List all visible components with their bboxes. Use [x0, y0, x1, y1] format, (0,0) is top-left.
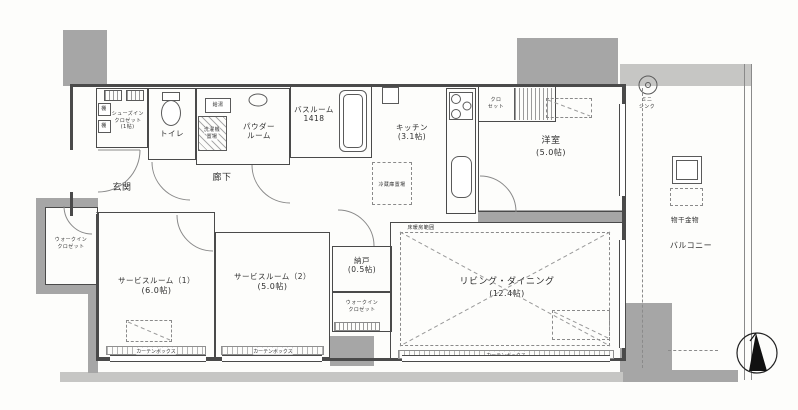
window-living-balcony: [619, 240, 626, 348]
window-service1: [110, 355, 206, 362]
storage-label: 納戸 (0.5帖): [334, 252, 390, 278]
bathtub-inner: [343, 94, 363, 148]
wall-wic-left-top: [36, 198, 98, 207]
wall-bottom-right-horz: [620, 370, 738, 382]
floor-heating-label: 床暖房範囲: [398, 224, 444, 233]
wic-left-label: ウォークイン クロゼット: [44, 232, 98, 256]
balcony-label: バルコニー: [664, 240, 718, 252]
service2-label: サービスルーム（2） (5.0帖): [219, 266, 326, 298]
window-service2: [222, 355, 322, 362]
living-label: リビング・ダイニング (12.4帖): [428, 272, 586, 304]
wic-center-shelf: [334, 322, 380, 331]
wic-center-label: ウォークイン クロゼット: [334, 296, 390, 318]
curtain-box-service1: カーテンボックス: [106, 346, 206, 355]
shoes-closet-label: シューズイン クロゼット (1帖): [106, 104, 150, 138]
laundry-pole-label: 物干金物: [662, 215, 708, 226]
wall-top-center-block: [517, 38, 618, 85]
compass: [737, 333, 777, 373]
bedroom-closet-label: クロ セット: [480, 88, 512, 120]
floor-plan: 棚 棚 シューズイン クロゼット (1帖) トイレ 給湯 洗濯機 置場 パウダー…: [0, 0, 798, 410]
kitchen-label: キッチン (3.1帖): [378, 118, 446, 146]
toilet-label: トイレ: [152, 128, 192, 140]
balcony-rail-outer: [751, 64, 752, 380]
fridge-label: 冷蔵庫置場: [372, 180, 412, 190]
kitchen-sink: [451, 156, 472, 198]
door-swing-storage: [338, 210, 374, 246]
compass-circle: [737, 333, 777, 373]
shoes-shelf-top-1: [104, 90, 122, 101]
wall-top-right-band: [620, 64, 752, 86]
door-swing-powder: [252, 165, 290, 203]
sill-bottom-left: [60, 372, 393, 382]
balcony-rail-inner: [744, 64, 745, 380]
wall-center-bottom-block: [330, 336, 374, 366]
toilet-bowl: [161, 100, 181, 126]
balcony-divider-dashed: [668, 350, 718, 351]
service1-label: サービスルーム（1） (6.0帖): [102, 270, 211, 302]
curtain-box-service2: カーテンボックス: [221, 346, 324, 355]
mini-sink-label: ミニ シンク: [632, 94, 662, 114]
powder-room-label: パウダー ルーム: [232, 118, 286, 144]
door-swing-toilet: [152, 162, 190, 200]
storage-small-box: [382, 87, 399, 104]
balcony-water-heater-inner: [676, 160, 698, 180]
sill-bottom-living: [393, 372, 623, 382]
stove: [449, 92, 473, 120]
balcony-boundary-dashed: [642, 88, 643, 368]
window-bedroom: [619, 104, 626, 196]
entrance-door-opening: [68, 150, 75, 192]
hallway-label: 廊下: [202, 172, 242, 185]
service1-furniture: [126, 320, 172, 342]
entrance-label: 玄関: [104, 182, 140, 196]
balcony-ac-unit: [670, 188, 703, 206]
window-living: [402, 355, 610, 362]
bedroom-furniture: [546, 98, 592, 118]
bedroom-label: 洋室 (5.0帖): [516, 132, 586, 162]
wall-top-left-block: [63, 30, 107, 86]
water-heater-box: 給湯: [205, 98, 231, 113]
shoes-shelf-top-2: [126, 90, 144, 101]
bathroom-label: バスルーム 1418: [288, 100, 340, 128]
laundry-space: 洗濯機 置場: [198, 116, 227, 151]
living-furniture: [552, 310, 610, 340]
